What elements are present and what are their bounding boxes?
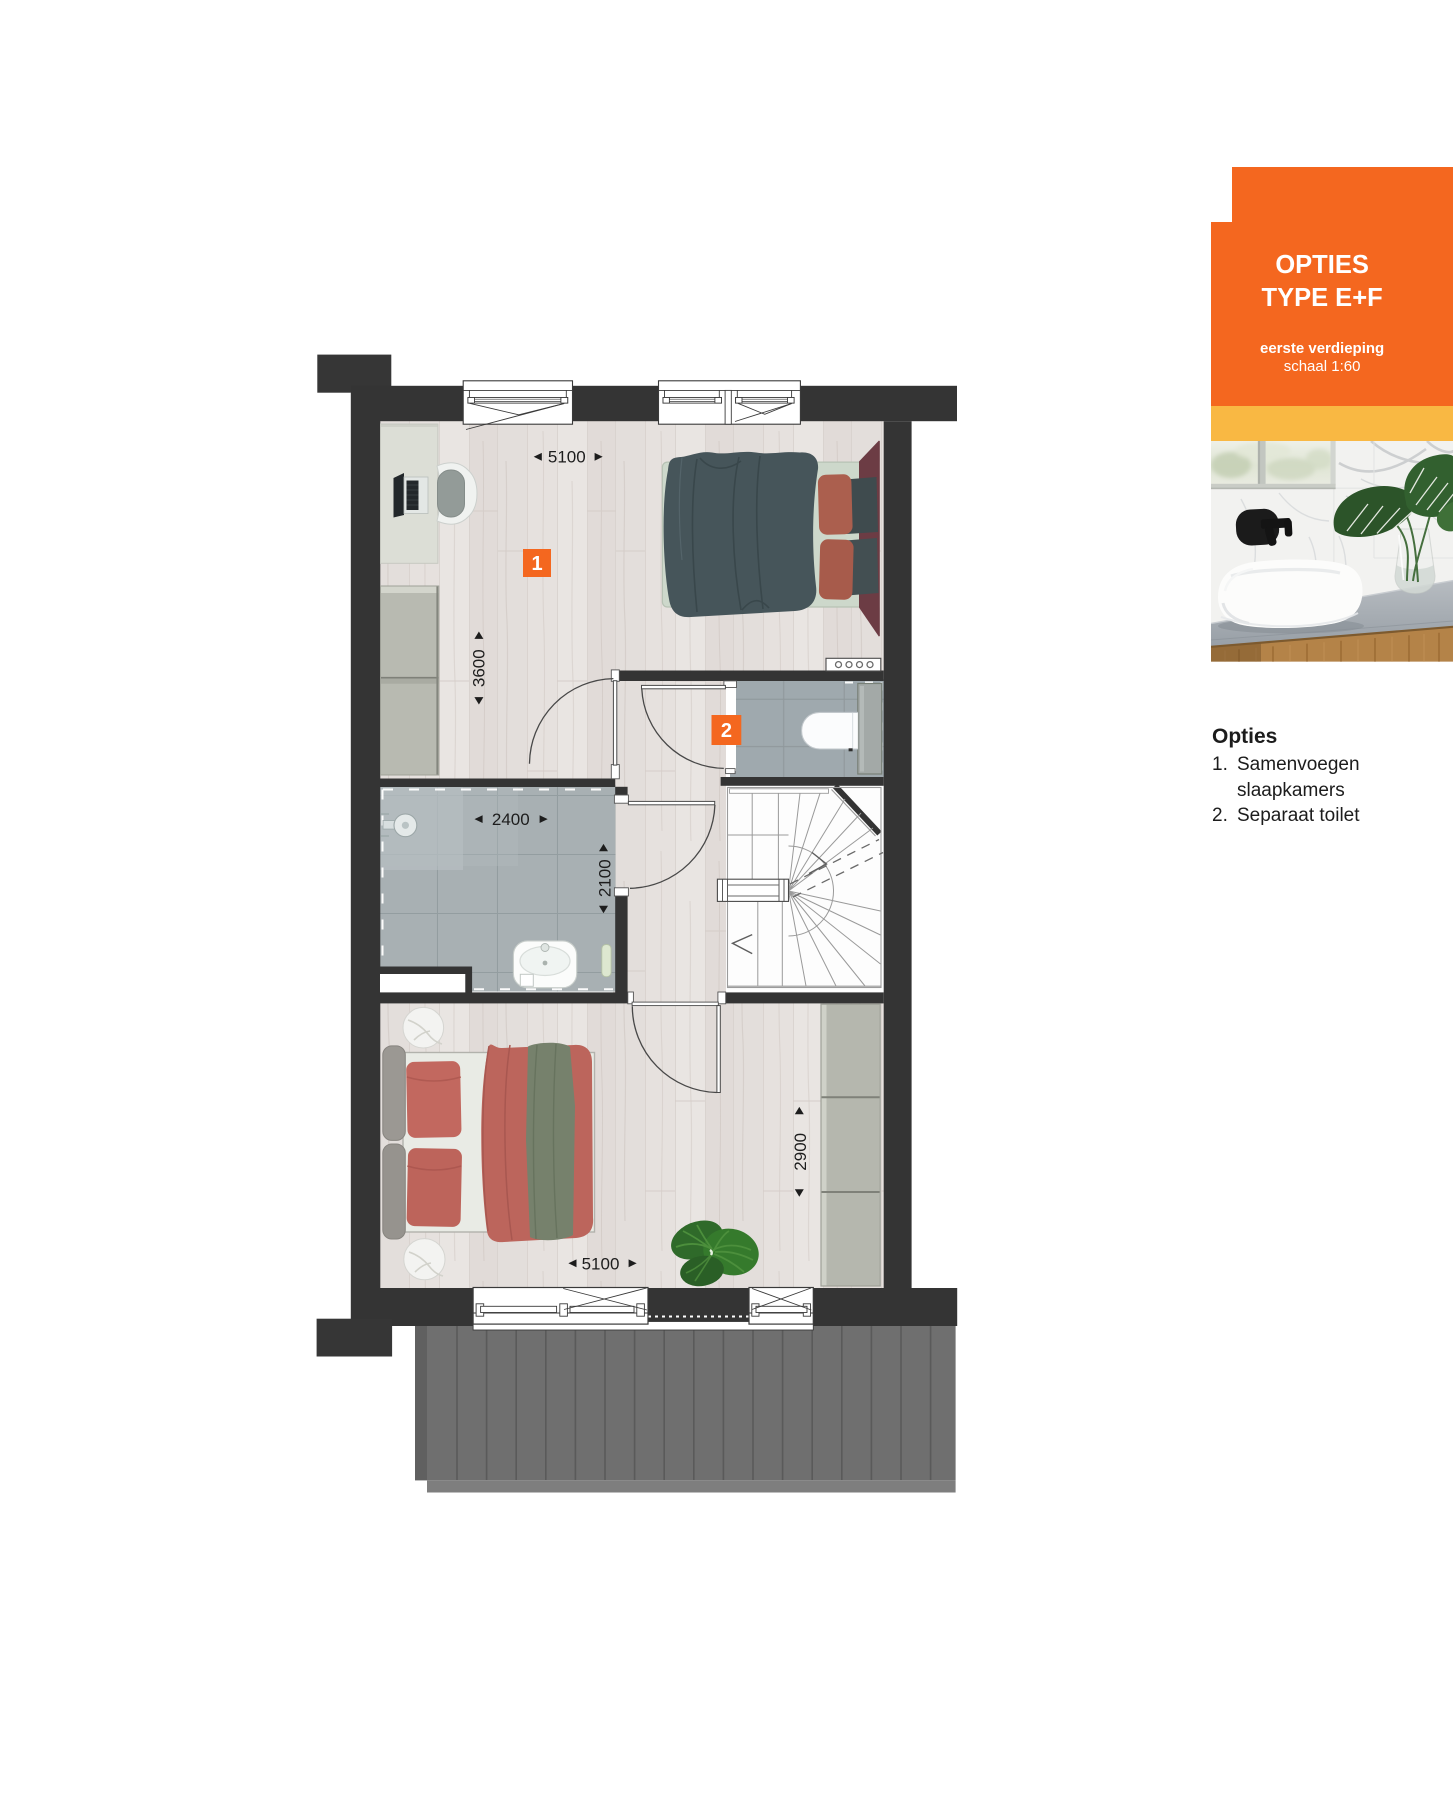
svg-text:3600: 3600 xyxy=(470,649,489,687)
svg-text:2100: 2100 xyxy=(595,859,614,897)
svg-text:5100: 5100 xyxy=(548,448,586,467)
svg-text:1: 1 xyxy=(531,553,542,575)
svg-text:5100: 5100 xyxy=(582,1254,620,1273)
svg-text:2400: 2400 xyxy=(492,810,530,829)
svg-text:2: 2 xyxy=(721,720,732,742)
svg-text:2900: 2900 xyxy=(791,1133,810,1171)
